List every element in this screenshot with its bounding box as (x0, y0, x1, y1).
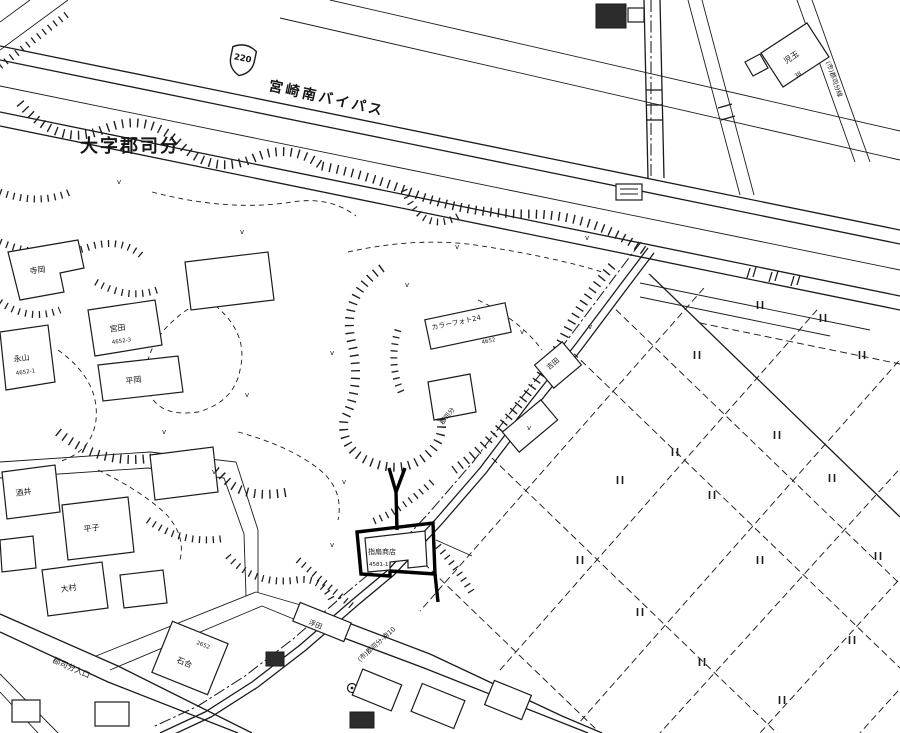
svg-text:v: v (520, 328, 524, 336)
svg-text:v: v (240, 228, 244, 236)
map-canvas: v v v v v v v v v v v v v v 大字郡司分 220 宮崎… (0, 0, 900, 733)
building-dark (266, 652, 284, 666)
svg-text:v: v (117, 178, 121, 186)
building-unlabeled (628, 8, 644, 22)
svg-text:v: v (245, 391, 249, 399)
svg-text:v: v (455, 243, 459, 251)
cadastral-map: v v v v v v v v v v v v v v 大字郡司分 220 宮崎… (0, 0, 900, 733)
area-name-label: 大字郡司分 (80, 135, 180, 157)
building-dark (350, 712, 374, 728)
roadside-structure-icon (616, 184, 642, 200)
building-unlabeled (95, 702, 129, 726)
subject-property-name: 指扇商店 (368, 547, 396, 556)
svg-text:v: v (212, 468, 216, 476)
svg-text:v: v (585, 234, 589, 242)
svg-text:v: v (342, 478, 346, 486)
building-unlabeled (12, 700, 40, 722)
building-unlabeled (150, 447, 218, 500)
building-unlabeled (185, 252, 274, 310)
svg-text:v: v (330, 349, 334, 357)
svg-text:v: v (162, 428, 166, 436)
svg-text:v: v (588, 323, 592, 331)
building-dark (596, 4, 626, 28)
svg-text:v: v (527, 424, 531, 432)
subject-property-address: 4581-1 (369, 562, 388, 568)
building-unlabeled (120, 570, 167, 608)
building-unlabeled (0, 536, 36, 572)
svg-text:v: v (405, 281, 409, 289)
svg-text:v: v (330, 541, 334, 549)
